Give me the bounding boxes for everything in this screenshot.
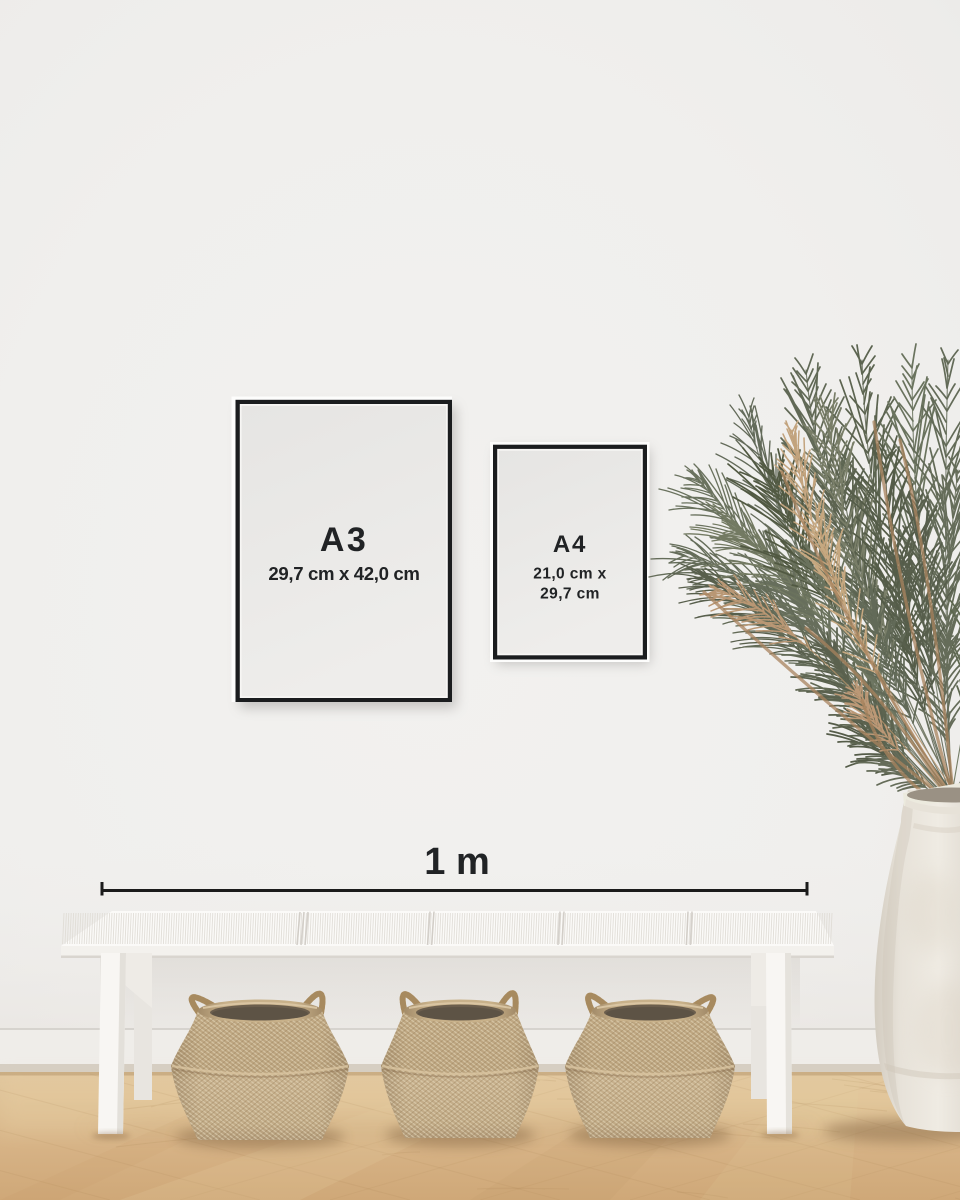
svg-text:29,7 cm x 42,0 cm: 29,7 cm x 42,0 cm — [268, 563, 419, 584]
svg-text:29,7 cm: 29,7 cm — [540, 586, 600, 603]
svg-text:1 m: 1 m — [424, 841, 489, 883]
svg-text:A3: A3 — [320, 521, 368, 559]
svg-text:A4: A4 — [553, 531, 587, 558]
svg-text:21,0 cm x: 21,0 cm x — [533, 566, 606, 583]
